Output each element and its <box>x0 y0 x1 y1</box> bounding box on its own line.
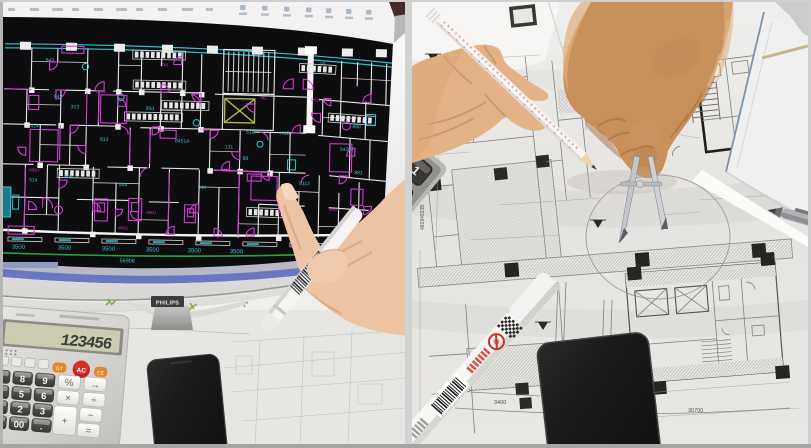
svg-text:3500: 3500 <box>230 249 244 255</box>
svg-text:518: 518 <box>246 130 255 136</box>
svg-text:844: 844 <box>119 182 128 188</box>
svg-text:813: 813 <box>100 137 109 143</box>
svg-text:AC: AC <box>76 367 86 375</box>
svg-text:CE: CE <box>97 370 105 377</box>
svg-text:313: 313 <box>71 104 80 110</box>
svg-text:414: 414 <box>30 123 39 129</box>
svg-text:M52: M52 <box>200 127 209 132</box>
svg-text:M4: M4 <box>199 185 206 191</box>
svg-text:88: 88 <box>243 156 249 162</box>
svg-text:904: 904 <box>64 174 73 180</box>
svg-text:3500: 3500 <box>102 246 116 252</box>
svg-text:881: 881 <box>354 170 363 176</box>
svg-text:6: 6 <box>41 391 47 402</box>
svg-text:K12: K12 <box>280 131 289 137</box>
svg-text:00: 00 <box>13 419 24 431</box>
svg-text:M521: M521 <box>118 225 129 230</box>
svg-text:30700: 30700 <box>688 408 703 414</box>
svg-text:3500: 3500 <box>58 245 72 251</box>
svg-text:M2: M2 <box>261 95 267 100</box>
svg-text:3500: 3500 <box>146 247 160 253</box>
svg-text:M521: M521 <box>96 89 107 94</box>
svg-text:131: 131 <box>225 144 234 150</box>
svg-text:×: × <box>65 393 72 404</box>
svg-text:MM21: MM21 <box>329 207 341 212</box>
svg-text:+: + <box>61 416 68 427</box>
svg-text:3: 3 <box>39 406 45 417</box>
svg-text:9: 9 <box>42 376 48 387</box>
svg-text:3400: 3400 <box>494 400 506 406</box>
svg-text:88d: 88d <box>352 124 361 130</box>
svg-text:%: % <box>64 377 74 389</box>
svg-text:17k2: 17k2 <box>160 62 170 67</box>
svg-text:M521: M521 <box>29 167 40 172</box>
svg-text:M521: M521 <box>146 210 157 215</box>
svg-text:→: → <box>90 379 101 391</box>
svg-text:643: 643 <box>46 58 55 64</box>
svg-text:8451A: 8451A <box>175 138 190 144</box>
svg-text:514: 514 <box>29 177 38 183</box>
svg-text:842: 842 <box>54 94 63 100</box>
svg-text:8: 8 <box>19 374 25 385</box>
svg-text:=: = <box>85 426 92 437</box>
svg-text:GT: GT <box>56 366 63 373</box>
svg-text:−: − <box>87 410 94 421</box>
svg-text:PHILIPS: PHILIPS <box>156 300 179 306</box>
svg-text:3500: 3500 <box>12 245 26 251</box>
svg-text:2: 2 <box>17 404 23 415</box>
svg-text:3500: 3500 <box>188 248 202 254</box>
svg-text:56908: 56908 <box>119 258 134 264</box>
svg-text:48194933B: 48194933B <box>420 204 426 230</box>
svg-text:95d: 95d <box>146 106 155 112</box>
svg-text:M521: M521 <box>311 97 322 102</box>
svg-text:1F: 1F <box>320 61 326 67</box>
